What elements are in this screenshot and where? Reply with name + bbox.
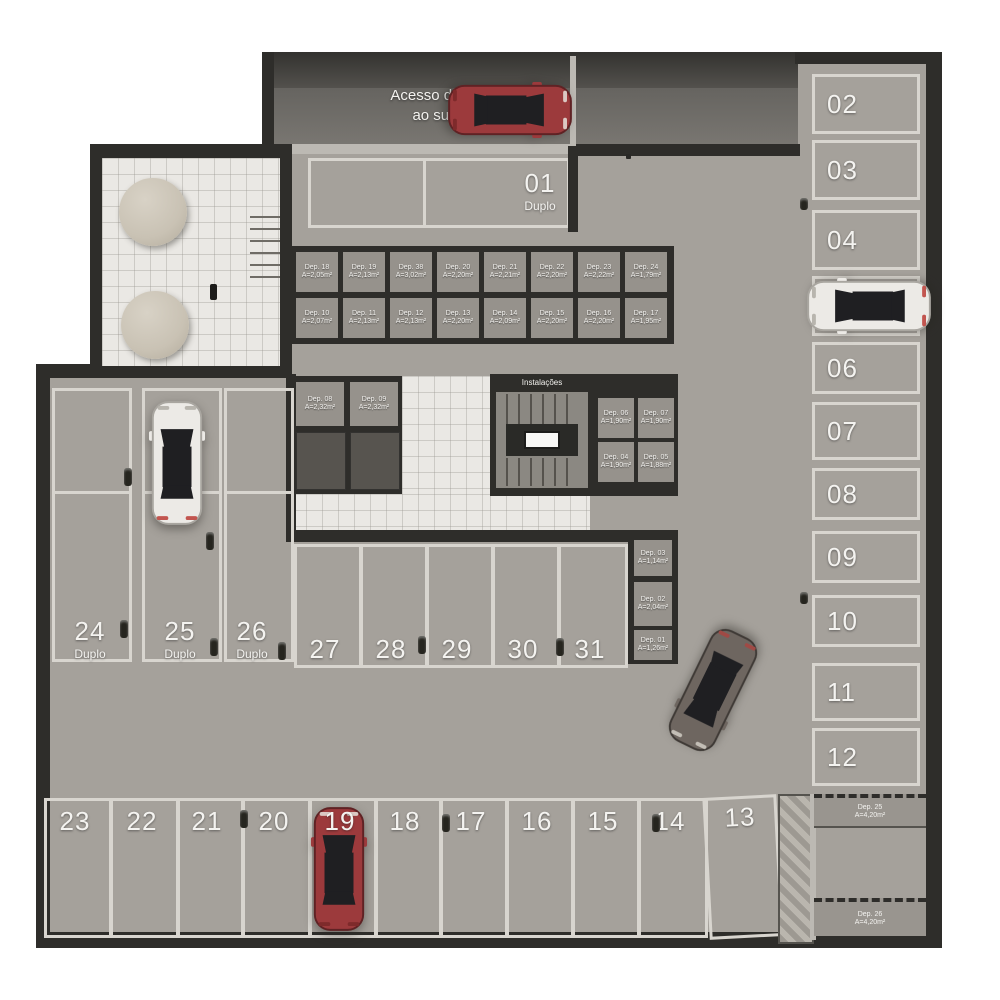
- deposit-17: Dep. 17A=1,95m²: [625, 298, 667, 338]
- parking-space-06: 06: [812, 342, 920, 394]
- car-top-view-icon: [148, 399, 206, 527]
- parking-space-08: 08: [812, 468, 920, 520]
- deposit-21: Dep. 21A=2,21m²: [484, 252, 526, 292]
- parking-space-04: 04: [812, 210, 920, 270]
- bollard-icon: [210, 638, 218, 656]
- space-10-number: 10: [827, 606, 858, 637]
- ramp-curb: [268, 144, 574, 154]
- space-02-number: 02: [827, 89, 858, 120]
- column-dot-icon: [626, 154, 631, 159]
- space-15-number: 15: [572, 806, 634, 837]
- deposit-24: Dep. 24A=1,79m²: [625, 252, 667, 292]
- space-08-number: 08: [827, 479, 858, 510]
- deposit-05: Dep. 05A=1,88m²: [638, 442, 674, 482]
- deposit-13: Dep. 13A=2,20m²: [437, 298, 479, 338]
- space-25-number: 25: [165, 616, 196, 647]
- space-07-number: 07: [827, 416, 858, 447]
- space-25-label: 25 Duplo: [144, 616, 216, 661]
- deposit-12: Dep. 12A=2,13m²: [390, 298, 432, 338]
- deposit-08: Dep. 08A=2,32m²: [296, 382, 344, 426]
- deposit-22: Dep. 22A=2,20m²: [531, 252, 573, 292]
- deposit-04: Dep. 04A=1,90m²: [598, 442, 634, 482]
- parking-space-03: 03: [812, 140, 920, 200]
- parking-space-10: 10: [812, 595, 920, 647]
- deposit-01: Dep. 01A=1,26m²: [634, 630, 672, 660]
- deposit-14: Dep. 14A=2,09m²: [484, 298, 526, 338]
- wall-top-right: [795, 52, 942, 64]
- parking-floorplan: Acesso de veículos ao subsolo 2 01 Duplo…: [0, 0, 1000, 1000]
- deposit-15: Dep. 15A=2,20m²: [531, 298, 573, 338]
- space-26-number: 26: [237, 616, 268, 647]
- space-13-number: 13: [705, 800, 775, 835]
- reservoir-top-wall: [90, 144, 292, 158]
- space-26-type: Duplo: [236, 647, 267, 661]
- bollard-icon: [278, 642, 286, 660]
- deposit-11: Dep. 11A=2,13m²: [343, 298, 385, 338]
- hatched-shaft: [778, 794, 814, 944]
- deposit-16: Dep. 16A=2,20m²: [578, 298, 620, 338]
- deposit-23: Dep. 23A=2,22m²: [578, 252, 620, 292]
- door-marker-icon: [800, 198, 808, 210]
- deposit-10: Dep. 10A=2,07m²: [296, 298, 338, 338]
- space-01-divider: [423, 161, 426, 225]
- space-14-number: 14: [638, 806, 702, 837]
- space-18-number: 18: [374, 806, 436, 837]
- space-23-number: 23: [44, 806, 106, 837]
- space-21-number: 21: [176, 806, 238, 837]
- wall-right: [926, 52, 942, 948]
- space-16-number: 16: [506, 806, 568, 837]
- deposit-18: Dep. 18A=2,05m²: [296, 252, 338, 292]
- space-31-number: 31: [558, 634, 622, 665]
- reservoir-left-wall: [90, 144, 102, 376]
- car-space-25: [148, 399, 206, 527]
- deposit-26: Dep. 26 A=4,20m²: [814, 898, 926, 936]
- car-top-view-icon: [805, 277, 933, 335]
- deposit-25: Dep. 25 A=4,20m²: [814, 794, 926, 828]
- deposit-02: Dep. 02A=2,04m²: [634, 582, 672, 626]
- space-20-number: 20: [242, 806, 306, 837]
- deposit-25-name: Dep. 25: [858, 804, 883, 812]
- space-12-number: 12: [827, 742, 858, 773]
- bollard-icon: [418, 636, 426, 654]
- parking-space-09: 09: [812, 531, 920, 583]
- core-bottom-wall: [288, 530, 678, 542]
- utility-room: [296, 432, 346, 490]
- wall-garage-top-left: [36, 364, 292, 378]
- space-09-number: 09: [827, 542, 858, 573]
- deposit-03: Dep. 03A=1,14m²: [634, 540, 672, 576]
- space-27-number: 27: [294, 634, 356, 665]
- space-11-number: 11: [827, 677, 856, 708]
- parking-space-11: 11: [812, 663, 920, 721]
- space-24-label: 24 Duplo: [54, 616, 126, 661]
- elevator-car-icon: [524, 431, 560, 449]
- space-01-type: Duplo: [524, 199, 555, 213]
- space-30-number: 30: [492, 634, 554, 665]
- space-25-type: Duplo: [164, 647, 195, 661]
- reservoir-stairs-icon: [250, 206, 280, 284]
- space-22-number: 22: [110, 806, 174, 837]
- instalacoes-label: Instalações: [490, 378, 594, 387]
- space-24-number: 24: [75, 616, 106, 647]
- deposit-26-name: Dep. 26: [858, 911, 883, 919]
- deposit-20: Dep. 20A=2,20m²: [437, 252, 479, 292]
- parking-space-12: 12: [812, 728, 920, 786]
- space-24-type: Duplo: [74, 647, 105, 661]
- bollard-icon: [442, 814, 450, 832]
- car-ramp: [446, 81, 574, 139]
- bollard-icon: [206, 532, 214, 550]
- deposit-19: Dep. 19A=2,13m²: [343, 252, 385, 292]
- space-19-number: 19: [308, 806, 372, 837]
- utility-room: [350, 432, 400, 490]
- bollard-icon: [120, 620, 128, 638]
- bollard-icon: [652, 814, 660, 832]
- deposit-25-area: A=4,20m²: [855, 812, 886, 820]
- deposit-09: Dep. 09A=2,32m²: [350, 382, 398, 426]
- ramp-bottom-wall: [570, 144, 800, 156]
- car-top-view-icon: [446, 81, 574, 139]
- deposit-06: Dep. 06A=1,90m²: [598, 398, 634, 438]
- space-03-number: 03: [827, 155, 858, 186]
- water-tank-icon: [121, 291, 189, 359]
- bollard-icon: [240, 810, 248, 828]
- space-01-number: 01: [525, 168, 556, 199]
- space-04-number: 04: [827, 225, 858, 256]
- space-06-number: 06: [827, 353, 858, 384]
- wall-stub-01: [568, 146, 578, 232]
- deposit-07: Dep. 07A=1,90m²: [638, 398, 674, 438]
- door-marker-icon: [800, 592, 808, 604]
- space-26-label: 26 Duplo: [218, 616, 286, 661]
- reservoir-door-icon: [210, 284, 217, 300]
- deposit-26-area: A=4,20m²: [855, 919, 886, 927]
- bollard-icon: [124, 468, 132, 486]
- parking-space-07: 07: [812, 402, 920, 460]
- water-tank-icon: [119, 178, 187, 246]
- space-29-number: 29: [426, 634, 488, 665]
- space-28-number: 28: [360, 634, 422, 665]
- bollard-icon: [556, 638, 564, 656]
- deposit-38: Dep. 38A=3,02m²: [390, 252, 432, 292]
- car-space-05: [805, 277, 933, 335]
- ramp-left-wall: [262, 52, 274, 152]
- parking-space-02: 02: [812, 74, 920, 134]
